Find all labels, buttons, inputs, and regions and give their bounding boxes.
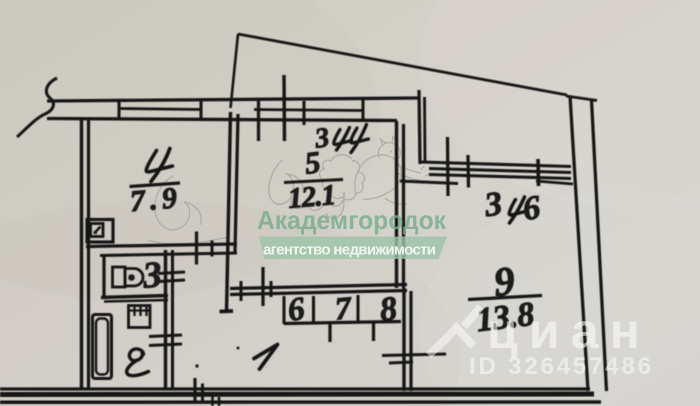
svg-text:3: 3: [140, 254, 163, 297]
svg-text:Академгородок: Академгородок: [257, 205, 447, 235]
svg-text:агентство недвижимости: агентство недвижимости: [263, 242, 436, 259]
svg-text:7.9: 7.9: [129, 181, 179, 218]
